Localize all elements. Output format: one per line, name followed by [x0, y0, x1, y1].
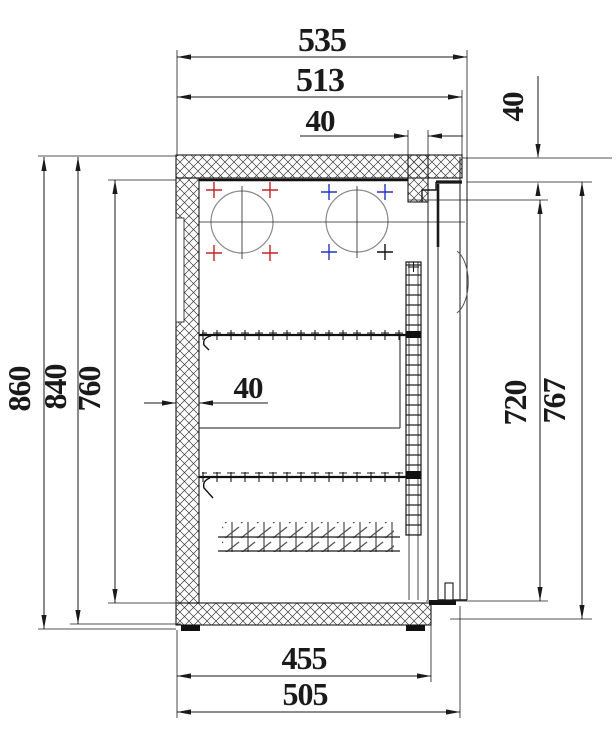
drawing-page: 535 513 40 40 860 — [0, 0, 616, 750]
feet — [181, 625, 425, 631]
dim-label-40-top: 40 — [306, 103, 336, 138]
dim-label-720: 720 — [497, 381, 533, 426]
dim-label-505: 505 — [283, 676, 328, 712]
dimension-interior-depth: 455 — [177, 640, 431, 679]
door-bottom-pin — [445, 583, 453, 600]
shelf-support-rack — [406, 262, 421, 600]
rack-joint-upper — [406, 331, 421, 338]
dimension-base-depth: 505 — [177, 676, 460, 715]
dimension-overall-width: 535 — [177, 22, 467, 60]
dimension-wall-thickness: 40 — [144, 370, 268, 406]
shelf-lower — [199, 472, 421, 498]
dimension-body-width: 513 — [177, 62, 462, 100]
dim-label-455: 455 — [282, 640, 327, 676]
dim-label-40-right: 40 — [495, 92, 530, 122]
dimension-top-step-right: 40 — [495, 76, 541, 196]
fan-right-dark-mark — [377, 244, 393, 260]
dim-label-767: 767 — [536, 378, 572, 424]
foot-front — [406, 625, 425, 631]
front-pillar — [408, 155, 428, 202]
door-assembly — [422, 157, 468, 605]
dim-label-513: 513 — [296, 62, 344, 99]
dim-label-860: 860 — [1, 367, 37, 412]
dim-label-535: 535 — [298, 22, 346, 59]
dim-label-40-inner: 40 — [234, 370, 264, 405]
dim-label-760: 760 — [71, 367, 107, 412]
dimension-door-height: 767 — [536, 182, 585, 619]
condenser-coil — [218, 522, 400, 552]
dim-label-840: 840 — [37, 365, 73, 410]
shelf-upper — [199, 330, 421, 428]
section-drawing: 535 513 40 40 860 — [0, 0, 616, 750]
dimension-rear-duct-width: 40 — [300, 103, 463, 139]
rear-wall-recess — [176, 218, 184, 322]
foot-rear — [181, 625, 200, 631]
rack-joint-lower — [406, 471, 421, 479]
bottom-wall — [176, 603, 431, 625]
